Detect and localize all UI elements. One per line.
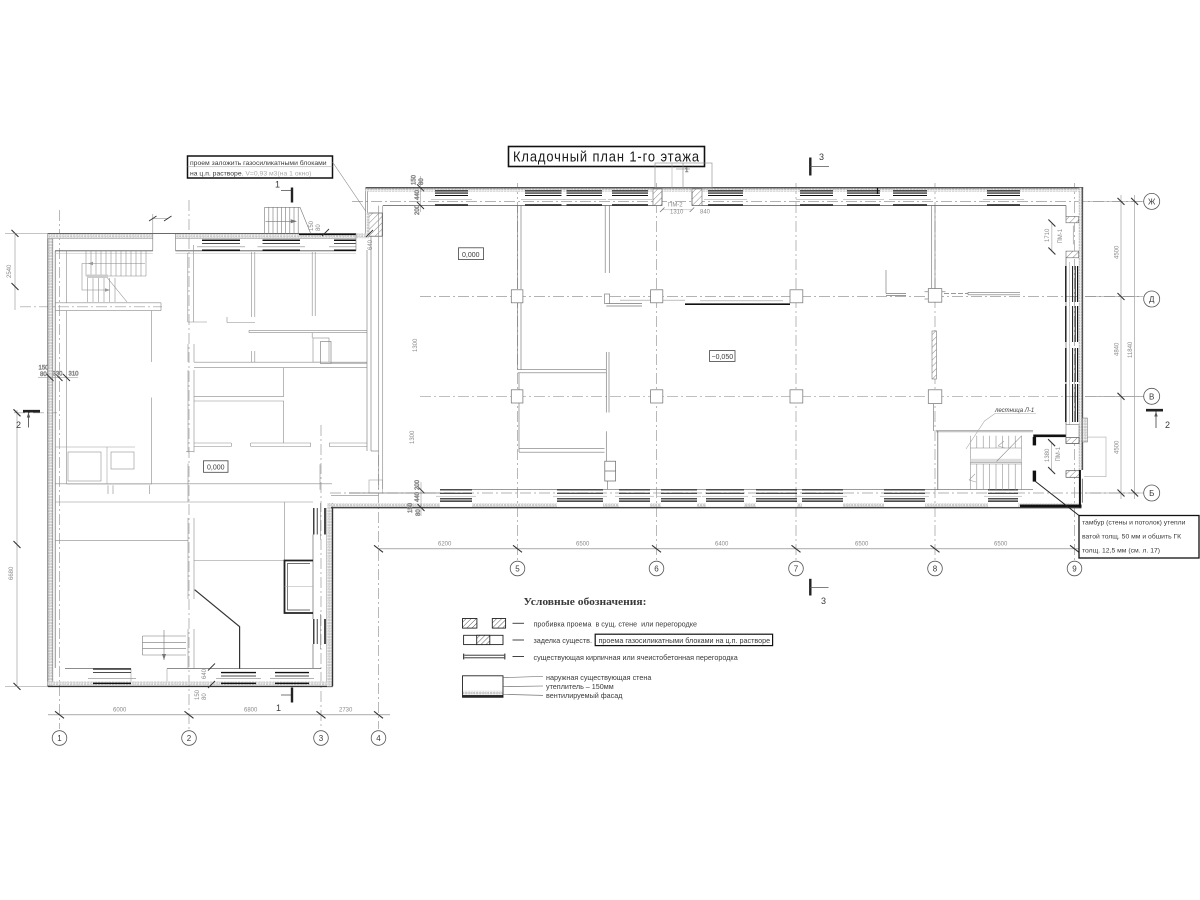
svg-text:6000: 6000 <box>113 708 127 714</box>
svg-text:6500: 6500 <box>994 542 1008 548</box>
svg-text:200: 200 <box>415 204 421 215</box>
svg-text:3: 3 <box>821 596 826 606</box>
svg-text:2540: 2540 <box>7 264 13 278</box>
svg-text:0,000: 0,000 <box>207 465 225 472</box>
svg-text:6200: 6200 <box>438 542 452 548</box>
svg-text:ПМ-1: ПМ-1 <box>1056 446 1062 461</box>
svg-text:7: 7 <box>794 565 799 574</box>
svg-text:3: 3 <box>319 734 324 743</box>
svg-text:1300: 1300 <box>413 338 419 352</box>
svg-text:1: 1 <box>57 734 62 743</box>
svg-text:0,000: 0,000 <box>462 252 480 259</box>
svg-text:проема газосиликатными блоками: проема газосиликатными блоками на ц.п. р… <box>599 636 771 645</box>
svg-text:640: 640 <box>368 239 374 250</box>
svg-text:440: 440 <box>415 491 421 502</box>
svg-text:840: 840 <box>700 210 711 216</box>
svg-text:150: 150 <box>39 366 50 372</box>
svg-text:4500: 4500 <box>1115 245 1121 259</box>
svg-text:6680: 6680 <box>9 566 15 580</box>
svg-text:Ж: Ж <box>1148 197 1156 206</box>
svg-text:1300: 1300 <box>410 430 416 444</box>
svg-text:толщ. 12,5 мм (см. л. 17): толщ. 12,5 мм (см. л. 17) <box>1082 548 1160 555</box>
svg-text:80: 80 <box>416 509 422 516</box>
svg-text:1710: 1710 <box>1045 228 1051 242</box>
svg-text:5: 5 <box>515 565 520 574</box>
svg-text:тамбур (стены и потолок) утепл: тамбур (стены и потолок) утепли <box>1082 519 1186 527</box>
svg-text:Условные обозначения:: Условные обозначения: <box>524 596 647 608</box>
svg-text:Д: Д <box>1149 295 1155 304</box>
svg-text:3: 3 <box>819 152 824 162</box>
svg-text:В: В <box>1149 392 1154 401</box>
svg-text:существующая кирпичная или яче: существующая кирпичная или ячеистобетонн… <box>534 653 738 662</box>
svg-text:80: 80 <box>202 693 208 700</box>
svg-text:пробивка проема в сущ. стене: пробивка проема в сущ. стене или перегор… <box>534 619 697 628</box>
svg-text:150: 150 <box>309 220 315 231</box>
svg-text:6800: 6800 <box>244 708 258 714</box>
svg-text:8: 8 <box>933 565 938 574</box>
svg-text:ПМ-1: ПМ-1 <box>1058 228 1064 243</box>
svg-text:2: 2 <box>16 420 21 430</box>
svg-text:2730: 2730 <box>339 708 353 714</box>
svg-text:6500: 6500 <box>576 542 590 548</box>
svg-text:640: 640 <box>202 668 208 679</box>
svg-text:200: 200 <box>415 479 421 490</box>
svg-text:на ц.п. растворе, V=0,93 м3(н: на ц.п. растворе, V=0,93 м3(на 1 окно) <box>190 170 311 177</box>
svg-text:ПМ-2: ПМ-2 <box>668 203 683 209</box>
svg-text:ватой толщ. 50 мм и обшить ГК: ватой толщ. 50 мм и обшить ГК <box>1082 533 1181 541</box>
svg-text:80: 80 <box>419 178 425 185</box>
svg-text:6: 6 <box>654 565 659 574</box>
svg-text:2: 2 <box>1165 420 1170 430</box>
svg-text:4: 4 <box>376 734 381 743</box>
svg-text:−0,050: −0,050 <box>712 354 734 361</box>
svg-text:1310: 1310 <box>670 210 684 216</box>
svg-text:6500: 6500 <box>855 542 869 548</box>
svg-text:80: 80 <box>316 224 322 231</box>
svg-text:4500: 4500 <box>1115 440 1121 454</box>
svg-text:4840: 4840 <box>1115 342 1121 356</box>
svg-text:проем заложить газосиликатными: проем заложить газосиликатными блоками <box>190 159 327 167</box>
svg-text:утеплитель – 150мм: утеплитель – 150мм <box>546 682 614 691</box>
svg-text:80: 80 <box>40 372 47 378</box>
svg-text:150: 150 <box>412 174 418 185</box>
svg-text:440: 440 <box>415 189 421 200</box>
svg-text:1: 1 <box>275 180 280 190</box>
svg-text:2: 2 <box>187 734 192 743</box>
svg-text:9: 9 <box>1072 565 1077 574</box>
svg-text:Б: Б <box>1149 489 1154 498</box>
svg-text:330: 330 <box>53 372 64 378</box>
svg-text:11840: 11840 <box>1128 341 1134 358</box>
svg-text:310: 310 <box>69 372 80 378</box>
svg-text:150: 150 <box>408 502 414 513</box>
svg-text:6400: 6400 <box>715 542 729 548</box>
svg-text:1: 1 <box>276 703 281 713</box>
svg-text:150: 150 <box>195 689 201 700</box>
svg-text:наружная существующая стена: наружная существующая стена <box>546 673 651 682</box>
svg-text:вентилируемый фасад: вентилируемый фасад <box>546 691 623 700</box>
svg-text:1380: 1380 <box>1045 448 1051 462</box>
svg-text:заделка существ.: заделка существ. <box>534 636 592 645</box>
svg-text:лестница Л-1: лестница Л-1 <box>994 408 1034 414</box>
